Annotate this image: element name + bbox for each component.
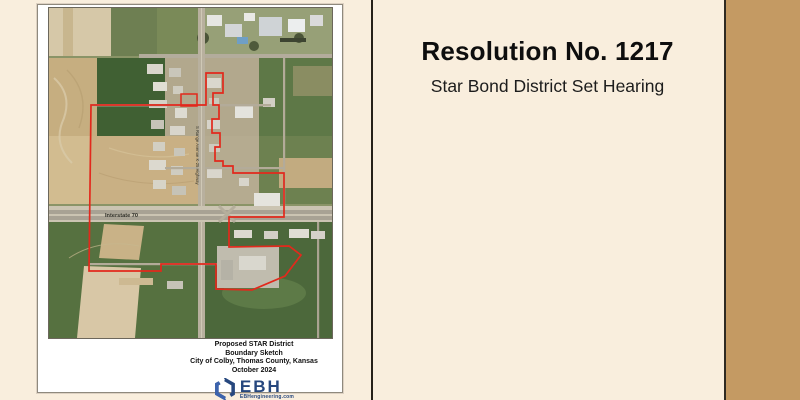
boundary-sketch-document: Interstate 70 S Range Avenue K-25 Highwa… bbox=[37, 4, 343, 393]
right-tan-band bbox=[724, 0, 800, 400]
caption-line-4: October 2024 bbox=[164, 367, 344, 376]
ebh-logo: EBH EBHengineering.com bbox=[164, 378, 344, 400]
caption-line-1: Proposed STAR District bbox=[164, 341, 344, 350]
resolution-subtitle: Star Bond District Set Hearing bbox=[373, 76, 722, 97]
ebh-logo-website: EBHengineering.com bbox=[240, 394, 294, 400]
ebh-logo-text: EBH bbox=[240, 379, 294, 394]
caption-line-3: City of Colby, Thomas County, Kansas bbox=[164, 358, 344, 367]
ebh-logo-icon bbox=[214, 378, 236, 400]
resolution-title: Resolution No. 1217 bbox=[373, 36, 722, 67]
caption-line-2: Boundary Sketch bbox=[164, 350, 344, 359]
range-avenue-label: S Range Avenue K-25 Highway bbox=[195, 126, 200, 185]
aerial-photo-graphic: Interstate 70 S Range Avenue K-25 Highwa… bbox=[49, 8, 332, 338]
map-caption-block: Proposed STAR District Boundary Sketch C… bbox=[164, 341, 344, 400]
interstate-70-label: Interstate 70 bbox=[105, 213, 138, 219]
aerial-photo: Interstate 70 S Range Avenue K-25 Highwa… bbox=[49, 8, 332, 338]
resolution-panel: Resolution No. 1217 Star Bond District S… bbox=[373, 0, 722, 400]
